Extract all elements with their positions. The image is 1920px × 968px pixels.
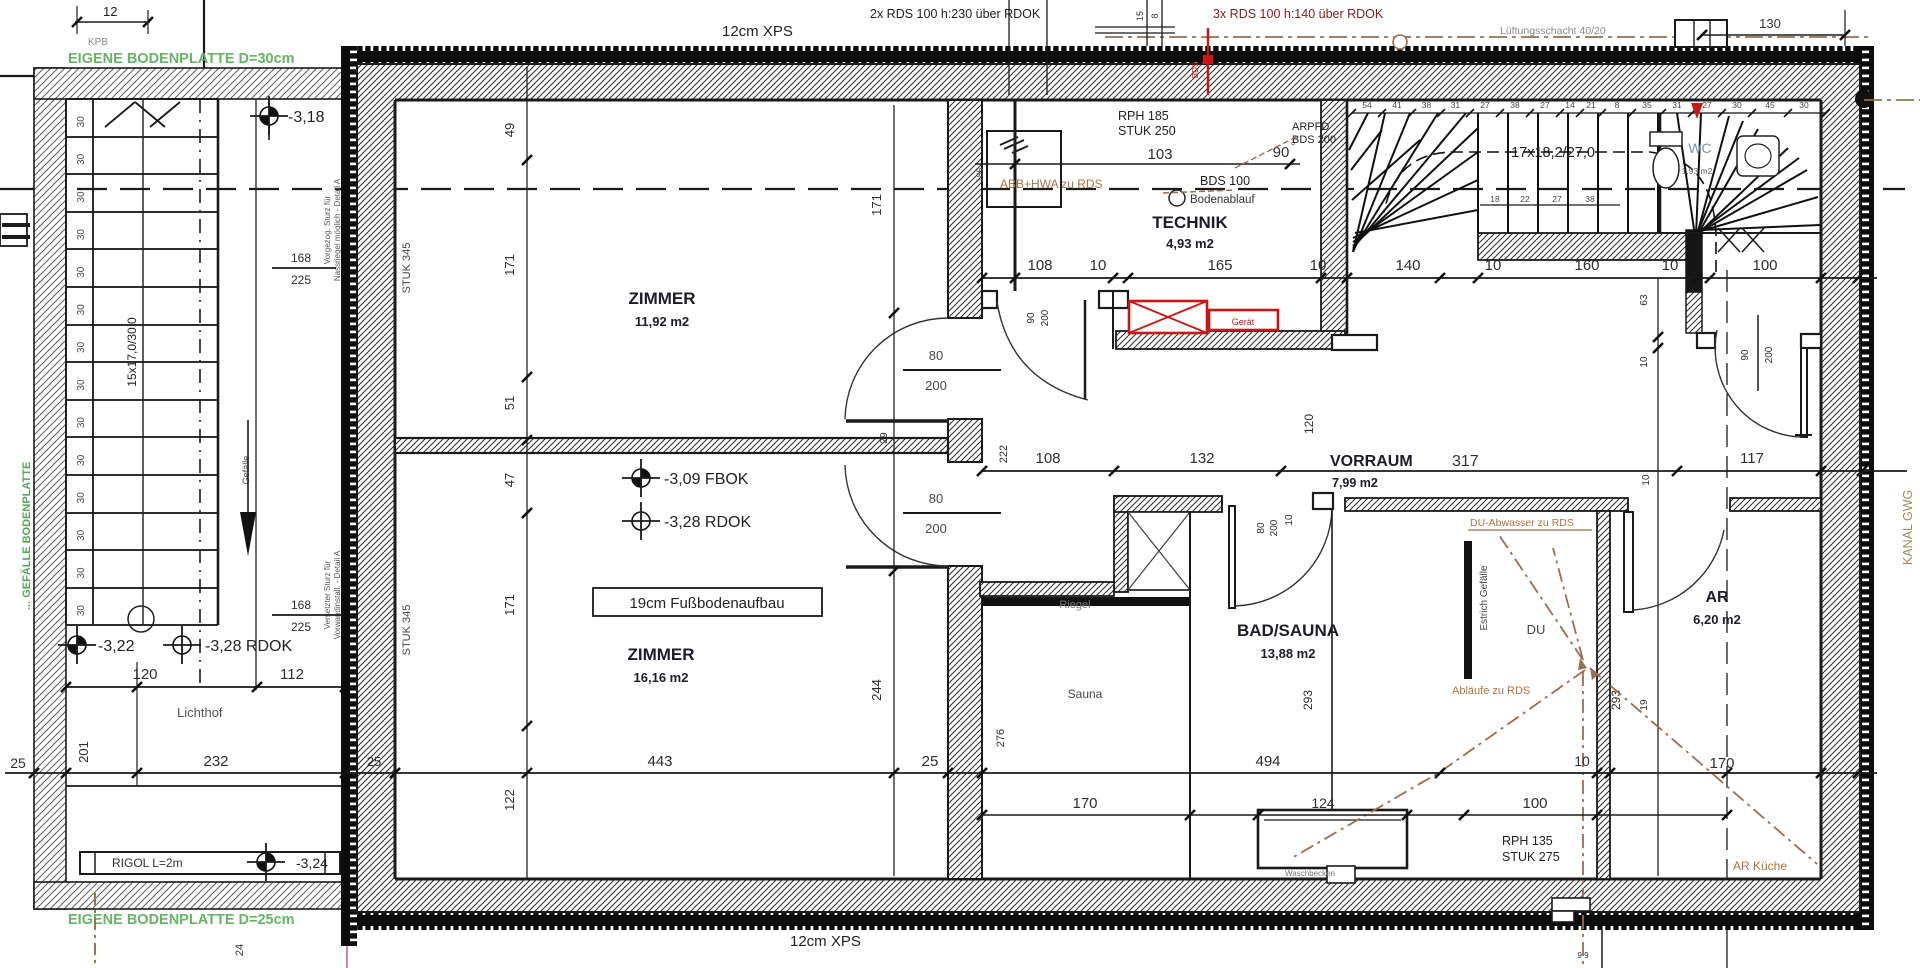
svg-text:BDS: BDS — [1191, 62, 1200, 78]
svg-text:BDS 100: BDS 100 — [1200, 174, 1250, 188]
svg-text:2x RDS 100 h:230 über RDOK: 2x RDS 100 h:230 über RDOK — [870, 7, 1041, 21]
svg-text:Vorgezog. Sturz für: Vorgezog. Sturz für — [323, 195, 332, 264]
svg-text:293: 293 — [1609, 690, 1623, 710]
svg-text:200: 200 — [925, 378, 947, 393]
svg-text:DU: DU — [1527, 622, 1546, 637]
svg-text:BAD/SAUNA: BAD/SAUNA — [1237, 621, 1339, 640]
svg-text:Gefälle: Gefälle — [241, 456, 251, 485]
svg-text:STUK 345: STUK 345 — [401, 605, 413, 656]
svg-text:171: 171 — [869, 194, 884, 216]
svg-text:30: 30 — [76, 492, 87, 504]
svg-text:225: 225 — [291, 273, 311, 287]
svg-text:47: 47 — [502, 473, 517, 487]
svg-text:30: 30 — [76, 266, 87, 278]
svg-text:232: 232 — [203, 753, 228, 770]
svg-text:140: 140 — [1395, 257, 1420, 274]
svg-text:185: 185 — [975, 167, 985, 182]
svg-text:120: 120 — [132, 666, 157, 683]
svg-text:21: 21 — [1586, 100, 1596, 110]
svg-text:200: 200 — [1269, 519, 1280, 536]
svg-text:Sauna: Sauna — [1068, 687, 1103, 701]
svg-text:171: 171 — [502, 594, 517, 616]
svg-text:27: 27 — [1702, 100, 1712, 110]
svg-text:80: 80 — [929, 491, 943, 506]
svg-text:27: 27 — [1552, 194, 1562, 204]
svg-text:RPH 185: RPH 185 — [1118, 109, 1169, 123]
svg-text:30: 30 — [76, 229, 87, 241]
svg-text:38: 38 — [1422, 100, 1432, 110]
svg-text:80: 80 — [1256, 522, 1267, 534]
svg-text:90: 90 — [1740, 349, 1751, 361]
svg-text:10: 10 — [1284, 514, 1295, 526]
svg-text:30: 30 — [76, 529, 87, 541]
svg-text:Waschbecken: Waschbecken — [1285, 869, 1335, 878]
svg-text:12cm XPS: 12cm XPS — [722, 23, 793, 40]
svg-text:30: 30 — [76, 417, 87, 429]
svg-text:16,16 m2: 16,16 m2 — [634, 670, 689, 685]
svg-text:... GEFÄLLE BODENPLATTE: ... GEFÄLLE BODENPLATTE — [20, 462, 33, 610]
svg-text:Nassriegel möglich - Detail A: Nassriegel möglich - Detail A — [333, 178, 342, 281]
svg-text:ZIMMER: ZIMMER — [627, 645, 694, 664]
svg-text:108: 108 — [1027, 257, 1052, 274]
svg-text:-3,22: -3,22 — [98, 638, 135, 655]
svg-text:38: 38 — [1510, 100, 1520, 110]
svg-text:24: 24 — [234, 944, 246, 956]
svg-text:TECHNIK: TECHNIK — [1152, 213, 1228, 232]
svg-text:KPB: KPB — [88, 37, 108, 48]
svg-text:35: 35 — [1642, 100, 1652, 110]
svg-text:90: 90 — [1026, 312, 1037, 324]
svg-text:STUK 250: STUK 250 — [1118, 124, 1176, 138]
svg-text:168: 168 — [291, 251, 311, 265]
svg-text:90: 90 — [1273, 144, 1290, 161]
svg-text:STUK 275: STUK 275 — [1502, 850, 1560, 864]
svg-text:-3,24: -3,24 — [296, 855, 328, 871]
svg-text:10: 10 — [1485, 257, 1502, 274]
svg-text:30: 30 — [76, 454, 87, 466]
svg-text:222: 222 — [998, 445, 1010, 463]
svg-text:DU-Abwasser zu RDS: DU-Abwasser zu RDS — [1470, 517, 1574, 529]
svg-text:-3,18: -3,18 — [288, 109, 325, 126]
svg-text:BDS 200: BDS 200 — [1292, 134, 1336, 146]
svg-text:8: 8 — [1615, 100, 1620, 110]
svg-text:Lichthof: Lichthof — [177, 705, 223, 720]
svg-text:10: 10 — [1310, 257, 1327, 274]
svg-text:1,93 m2: 1,93 m2 — [1682, 166, 1713, 176]
svg-text:18: 18 — [1490, 194, 1500, 204]
svg-text:30: 30 — [1732, 100, 1742, 110]
svg-text:244: 244 — [869, 679, 884, 701]
svg-text:7,99 m2: 7,99 m2 — [1332, 476, 1378, 490]
svg-text:122: 122 — [502, 789, 517, 811]
svg-text:132: 132 — [1189, 450, 1214, 467]
svg-text:Estrich Gefälle: Estrich Gefälle — [1479, 565, 1490, 630]
svg-text:4,93 m2: 4,93 m2 — [1166, 236, 1214, 251]
svg-text:124: 124 — [1311, 795, 1335, 811]
svg-text:VORRAUM: VORRAUM — [1330, 453, 1413, 470]
svg-text:29: 29 — [879, 432, 890, 444]
svg-text:-3,28 RDOK: -3,28 RDOK — [205, 638, 292, 655]
svg-text:165: 165 — [1207, 257, 1232, 274]
svg-text:8: 8 — [1150, 13, 1160, 18]
svg-text:Abläufe zu RDS: Abläufe zu RDS — [1452, 685, 1530, 697]
svg-text:160: 160 — [1574, 257, 1599, 274]
svg-text:12: 12 — [103, 4, 117, 19]
svg-text:30: 30 — [76, 379, 87, 391]
svg-text:108: 108 — [1035, 450, 1060, 467]
svg-text:6,20 m2: 6,20 m2 — [1693, 612, 1741, 627]
svg-text:112: 112 — [280, 666, 304, 683]
svg-text:49: 49 — [502, 123, 517, 137]
svg-text:30: 30 — [76, 153, 87, 165]
svg-text:-3,09 FBOK: -3,09 FBOK — [664, 471, 749, 488]
svg-text:168: 168 — [291, 598, 311, 612]
svg-text:200: 200 — [1764, 346, 1775, 363]
svg-text:100: 100 — [1522, 795, 1547, 812]
svg-text:10: 10 — [1090, 257, 1107, 274]
svg-text:11,92 m2: 11,92 m2 — [635, 314, 689, 329]
svg-text:25: 25 — [922, 753, 939, 770]
svg-text:30: 30 — [1799, 100, 1809, 110]
svg-text:Bodenablauf: Bodenablauf — [1190, 194, 1255, 206]
svg-text:276: 276 — [995, 729, 1007, 747]
svg-text:30: 30 — [76, 304, 87, 316]
svg-text:15x17,0/30,0: 15x17,0/30,0 — [125, 317, 139, 387]
svg-text:30: 30 — [76, 341, 87, 353]
svg-text:10: 10 — [1641, 474, 1652, 486]
svg-text:25: 25 — [367, 754, 381, 769]
svg-text:14: 14 — [1565, 100, 1575, 110]
svg-text:63: 63 — [1639, 294, 1650, 306]
svg-text:KANAL GWG: KANAL GWG — [1901, 490, 1915, 565]
svg-text:103: 103 — [1147, 146, 1172, 163]
svg-text:Vorwandinstall. - Detail A: Vorwandinstall. - Detail A — [333, 550, 342, 639]
svg-text:ARPFD: ARPFD — [1292, 121, 1329, 133]
svg-text:Gerät: Gerät — [1232, 317, 1255, 327]
svg-text:200: 200 — [1040, 309, 1051, 326]
svg-text:225: 225 — [291, 620, 311, 634]
svg-text:494: 494 — [1255, 753, 1280, 770]
svg-text:51: 51 — [502, 396, 517, 410]
svg-text:293: 293 — [1301, 690, 1315, 710]
svg-text:17x18,2/27,0: 17x18,2/27,0 — [1511, 145, 1595, 161]
svg-text:171: 171 — [502, 254, 517, 276]
svg-text:EIGENE BODENPLATTE D=30cm: EIGENE BODENPLATTE D=30cm — [68, 51, 295, 67]
svg-text:31: 31 — [1451, 100, 1461, 110]
svg-text:13,88 m2: 13,88 m2 — [1261, 646, 1316, 661]
svg-text:38: 38 — [1585, 194, 1595, 204]
svg-text:120: 120 — [1302, 414, 1316, 434]
svg-text:3x RDS 100 h:140 über RDOK: 3x RDS 100 h:140 über RDOK — [1213, 7, 1384, 21]
svg-text:170: 170 — [1072, 795, 1097, 812]
svg-text:10: 10 — [1662, 257, 1679, 274]
svg-text:80: 80 — [929, 348, 943, 363]
svg-text:45: 45 — [1765, 100, 1775, 110]
svg-text:201: 201 — [76, 741, 91, 763]
svg-text:30: 30 — [76, 191, 87, 203]
svg-text:AR Küche: AR Küche — [1733, 859, 1787, 873]
svg-text:130: 130 — [1759, 16, 1781, 31]
svg-text:27: 27 — [1480, 100, 1490, 110]
svg-text:10: 10 — [1574, 753, 1590, 769]
svg-text:RPH 135: RPH 135 — [1502, 834, 1553, 848]
svg-text:EIGENE BODENPLATTE D=25cm: EIGENE BODENPLATTE D=25cm — [68, 912, 295, 928]
svg-text:317: 317 — [1452, 453, 1479, 470]
svg-text:WC: WC — [1688, 140, 1711, 156]
svg-text:41: 41 — [1392, 100, 1402, 110]
svg-text:200: 200 — [925, 521, 947, 536]
svg-text:19cm Fußbodenaufbau: 19cm Fußbodenaufbau — [629, 595, 784, 612]
svg-text:170: 170 — [1709, 755, 1734, 772]
svg-text:RIGOL L=2m: RIGOL L=2m — [112, 856, 183, 870]
svg-text:100: 100 — [1752, 257, 1777, 274]
svg-text:19: 19 — [1639, 699, 1650, 711]
svg-text:443: 443 — [647, 753, 672, 770]
svg-text:30: 30 — [76, 116, 87, 128]
svg-text:9 9: 9 9 — [1577, 951, 1589, 960]
svg-text:Riegel: Riegel — [1059, 599, 1090, 611]
svg-text:ZIMMER: ZIMMER — [628, 289, 695, 308]
svg-text:-3,28 RDOK: -3,28 RDOK — [664, 514, 751, 531]
svg-text:Lüftungsschacht 40/20: Lüftungsschacht 40/20 — [1500, 25, 1606, 37]
svg-text:12cm XPS: 12cm XPS — [790, 933, 861, 950]
svg-text:54: 54 — [1362, 100, 1372, 110]
svg-text:10: 10 — [1639, 356, 1650, 368]
svg-text:31: 31 — [1672, 100, 1682, 110]
svg-text:30: 30 — [76, 567, 87, 579]
svg-text:ABB+HWA zu RDS: ABB+HWA zu RDS — [1000, 177, 1103, 191]
svg-text:25: 25 — [10, 755, 26, 771]
svg-text:27: 27 — [1540, 100, 1550, 110]
svg-text:STUK 345: STUK 345 — [401, 243, 413, 294]
svg-text:AR: AR — [1705, 589, 1729, 606]
svg-text:22: 22 — [1520, 194, 1530, 204]
svg-text:117: 117 — [1740, 450, 1764, 467]
svg-text:Versetzter Sturz für: Versetzter Sturz für — [323, 560, 332, 629]
svg-text:15: 15 — [1135, 11, 1145, 21]
svg-text:30: 30 — [76, 605, 87, 617]
